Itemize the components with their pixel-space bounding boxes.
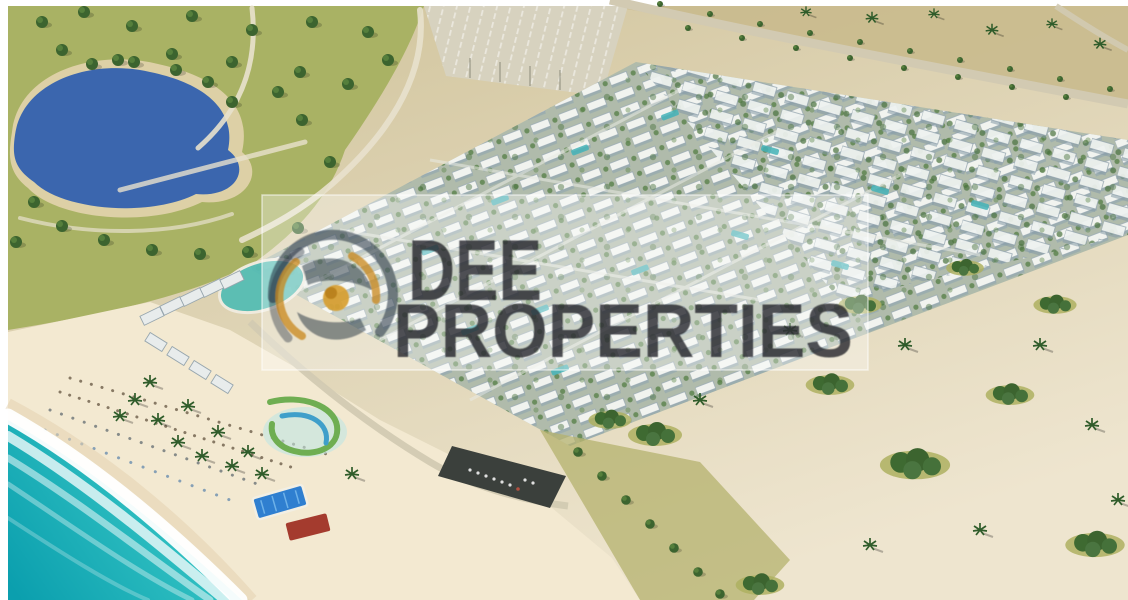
watermark-title-line2: PROPERTIES <box>393 289 853 374</box>
watermark: DEE PROPERTIES <box>262 195 868 374</box>
masterplan-scene: DEE PROPERTIES <box>0 0 1128 600</box>
aerial-render-photo: DEE PROPERTIES <box>0 0 1128 600</box>
